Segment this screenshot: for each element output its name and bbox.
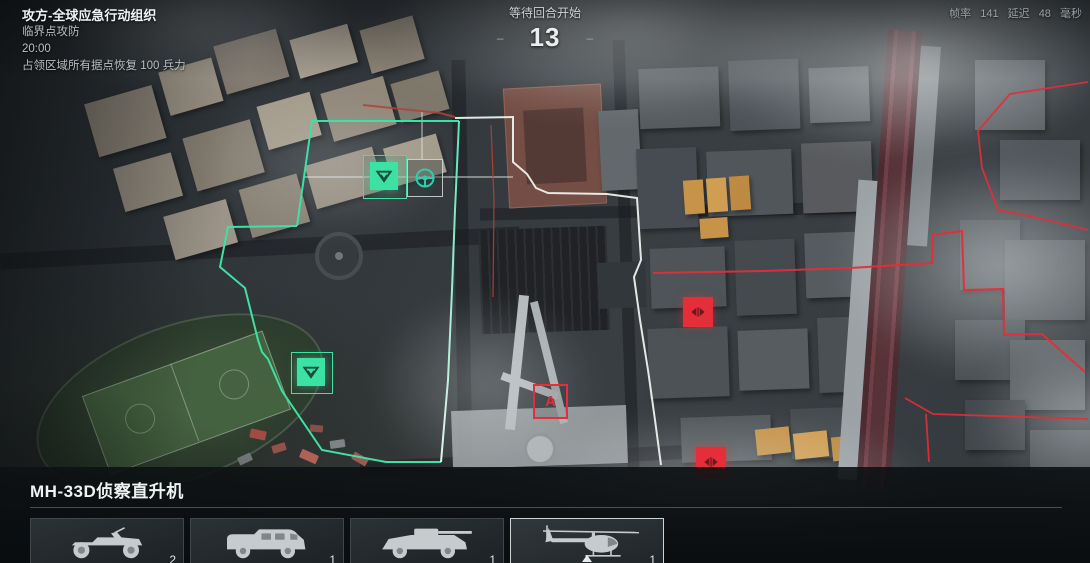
countdown-dash-right: – xyxy=(586,31,593,45)
round-countdown: 等待回合开始 – 13 – xyxy=(470,4,620,53)
panel-divider xyxy=(30,507,1062,508)
countdown-dash-left: – xyxy=(497,31,504,45)
vehicle-card-armored-truck[interactable]: 1 xyxy=(190,518,344,563)
map-containers xyxy=(706,177,728,212)
deploy-indicator-icon xyxy=(582,555,592,562)
map-containers xyxy=(699,217,728,239)
vehicle-count: 1 xyxy=(489,553,496,563)
map-containers xyxy=(729,175,751,210)
round-status-text: 等待回合开始 xyxy=(470,4,620,21)
vehicle-card-scout-helicopter[interactable]: 1 xyxy=(510,518,664,563)
ping-label: 延迟 xyxy=(1008,8,1030,20)
ping-value: 48 xyxy=(1039,8,1051,20)
match-timer: 20:00 xyxy=(22,42,186,57)
countdown-number: 13 xyxy=(530,22,561,53)
vehicle-card-armored-scout-car[interactable]: 1 xyxy=(350,518,504,563)
objective-a-marker: A xyxy=(533,384,568,419)
fps-value: 141 xyxy=(980,8,998,20)
objective-a-label: A xyxy=(545,393,556,410)
mode-rule: 占领区域所有据点恢复 100 兵力 xyxy=(22,59,186,74)
attack-objective-icon xyxy=(373,165,395,187)
friendly-objective-marker[interactable] xyxy=(297,358,325,386)
match-info: 攻方-全球应急行动组织 临界点攻防 20:00 占领区域所有据点恢复 100 兵… xyxy=(22,8,186,74)
vehicle-count: 2 xyxy=(169,553,176,563)
armored-scout-car-icon xyxy=(362,523,492,563)
performance-stats: 帧率 141 延迟 48 毫秒 xyxy=(943,5,1082,21)
vehicle-card-list: 2 1 xyxy=(30,518,664,563)
game-mode: 临界点攻防 xyxy=(22,25,186,40)
armored-truck-icon xyxy=(202,523,332,563)
vehicle-count: 1 xyxy=(649,553,656,563)
selected-vehicle-title: MH-33D侦察直升机 xyxy=(30,477,184,502)
map-containers xyxy=(683,179,705,214)
vehicle-card-quad-bike[interactable]: 2 xyxy=(30,518,184,563)
map-debris xyxy=(310,424,324,432)
attack-objective-icon xyxy=(300,361,322,383)
ping-unit: 毫秒 xyxy=(1060,8,1082,20)
faction-title: 攻方-全球应急行动组织 xyxy=(22,8,186,23)
quad-bike-icon xyxy=(42,523,172,563)
spawn-wheel-icon xyxy=(413,166,437,190)
enemy-arrows-icon xyxy=(688,302,708,322)
deploy-screen: A 攻方-全球应急行动组织 临界点攻防 20:00 占领区域所有据点恢复 100… xyxy=(0,0,1090,563)
vehicle-select-panel: MH-33D侦察直升机 2 xyxy=(0,467,1090,563)
friendly-objective-marker[interactable] xyxy=(370,162,398,190)
fps-label: 帧率 xyxy=(949,8,971,20)
vehicle-count: 1 xyxy=(329,553,336,563)
vehicle-spawn-point[interactable] xyxy=(407,159,443,197)
enemy-marker xyxy=(683,297,713,327)
